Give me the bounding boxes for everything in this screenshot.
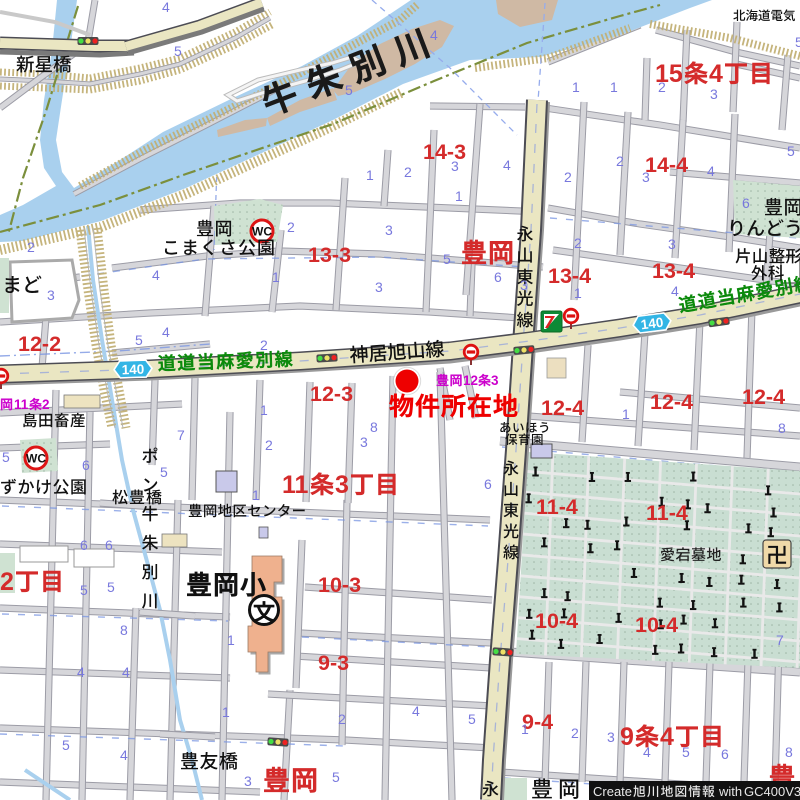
svg-text:9: 9 [620,723,634,751]
svg-text:6: 6 [721,746,729,762]
svg-text:2: 2 [42,397,50,412]
svg-text:2: 2 [404,164,412,180]
svg-text:3: 3 [668,236,676,252]
svg-text:6: 6 [742,195,750,211]
svg-text:12-3: 12-3 [310,382,353,406]
svg-text:3: 3 [335,471,349,499]
svg-text:4: 4 [412,703,420,719]
svg-text:5: 5 [443,251,451,267]
svg-text:10-4: 10-4 [635,613,678,637]
svg-text:1: 1 [227,632,235,648]
svg-text:13-4: 13-4 [652,259,695,283]
svg-text:5: 5 [468,711,476,727]
svg-text:6: 6 [82,457,90,473]
svg-text:8: 8 [778,420,786,436]
svg-text:5: 5 [2,449,10,465]
svg-text:7: 7 [776,632,784,648]
svg-text:5: 5 [160,464,168,480]
svg-text:5: 5 [107,579,115,595]
svg-text:4: 4 [77,664,85,680]
svg-text:5: 5 [345,82,353,98]
svg-text:4: 4 [430,27,438,43]
svg-text:12: 12 [463,373,478,388]
svg-text:3: 3 [375,279,383,295]
svg-text:11-4: 11-4 [646,501,688,525]
svg-text:5: 5 [332,769,340,785]
svg-text:2: 2 [658,79,666,95]
svg-text:6: 6 [494,269,502,285]
svg-text:1: 1 [521,721,529,737]
svg-text:5: 5 [682,744,690,760]
svg-text:1: 1 [572,79,580,95]
svg-text:WC: WC [252,225,272,239]
svg-text:3: 3 [385,222,393,238]
svg-text:with: with [718,784,742,799]
svg-text:14-4: 14-4 [645,153,688,177]
svg-text:2: 2 [265,437,273,453]
svg-text:7: 7 [177,427,185,443]
svg-text:3: 3 [710,86,718,102]
svg-text:1: 1 [260,402,268,418]
svg-text:140: 140 [121,362,144,378]
svg-text:3: 3 [47,287,55,303]
svg-text:11-4: 11-4 [536,495,578,519]
svg-text:1: 1 [610,79,618,95]
svg-text:1: 1 [222,704,230,720]
svg-text:4: 4 [162,324,170,340]
svg-text:2: 2 [287,219,295,235]
svg-text:14-3: 14-3 [423,140,466,164]
svg-text:4: 4 [660,723,674,751]
svg-text:3: 3 [491,373,499,388]
svg-text:1: 1 [455,188,463,204]
svg-text:2: 2 [260,337,268,353]
svg-text:13-4: 13-4 [548,264,591,288]
svg-text:2: 2 [27,239,35,255]
svg-text:10-3: 10-3 [318,573,361,597]
svg-text:11: 11 [14,397,29,412]
svg-text:3: 3 [360,434,368,450]
svg-text:11: 11 [282,471,309,499]
svg-text:5: 5 [62,737,70,753]
svg-text:4: 4 [709,60,723,88]
svg-text:3: 3 [520,277,528,293]
svg-text:4: 4 [643,744,651,760]
svg-text:12-2: 12-2 [18,332,61,356]
svg-text:2: 2 [338,711,346,727]
svg-text:12-4: 12-4 [541,396,584,420]
svg-text:4: 4 [503,157,511,173]
svg-text:5: 5 [787,143,795,159]
svg-text:1: 1 [574,285,582,301]
svg-text:5: 5 [80,582,88,598]
svg-text:4: 4 [152,267,160,283]
svg-text:5: 5 [135,332,143,348]
svg-text:6: 6 [80,537,88,553]
svg-text:1: 1 [622,406,630,422]
svg-text:4: 4 [162,0,170,15]
svg-text:10-4: 10-4 [535,609,578,633]
svg-text:2: 2 [564,169,572,185]
svg-text:5: 5 [174,43,182,59]
svg-text:8: 8 [785,744,793,760]
svg-text:WC: WC [26,452,46,466]
svg-text:3: 3 [244,773,252,789]
svg-text:5: 5 [795,34,800,50]
svg-text:2: 2 [574,235,582,251]
svg-text:1: 1 [252,487,260,503]
svg-text:6: 6 [484,476,492,492]
svg-text:2: 2 [571,725,579,741]
svg-text:2: 2 [616,153,624,169]
svg-text:3: 3 [642,169,650,185]
svg-text:6: 6 [105,537,113,553]
svg-text:8: 8 [370,419,378,435]
svg-text:3: 3 [607,729,615,745]
svg-text:3: 3 [451,158,459,174]
svg-text:4: 4 [122,664,130,680]
svg-text:9-3: 9-3 [318,651,349,675]
svg-text:4: 4 [120,747,128,763]
svg-text:1: 1 [366,167,374,183]
svg-text:12-4: 12-4 [742,385,785,409]
svg-text:GC400V3: GC400V3 [744,784,800,799]
svg-text:12-4: 12-4 [650,390,693,414]
svg-text:13-3: 13-3 [308,243,351,267]
svg-text:4: 4 [671,283,679,299]
svg-text:8: 8 [120,622,128,638]
svg-text:4: 4 [707,163,715,179]
svg-text:1: 1 [272,269,280,285]
svg-text:Create: Create [593,784,632,799]
svg-text:2: 2 [0,568,14,596]
svg-text:140: 140 [640,315,664,333]
